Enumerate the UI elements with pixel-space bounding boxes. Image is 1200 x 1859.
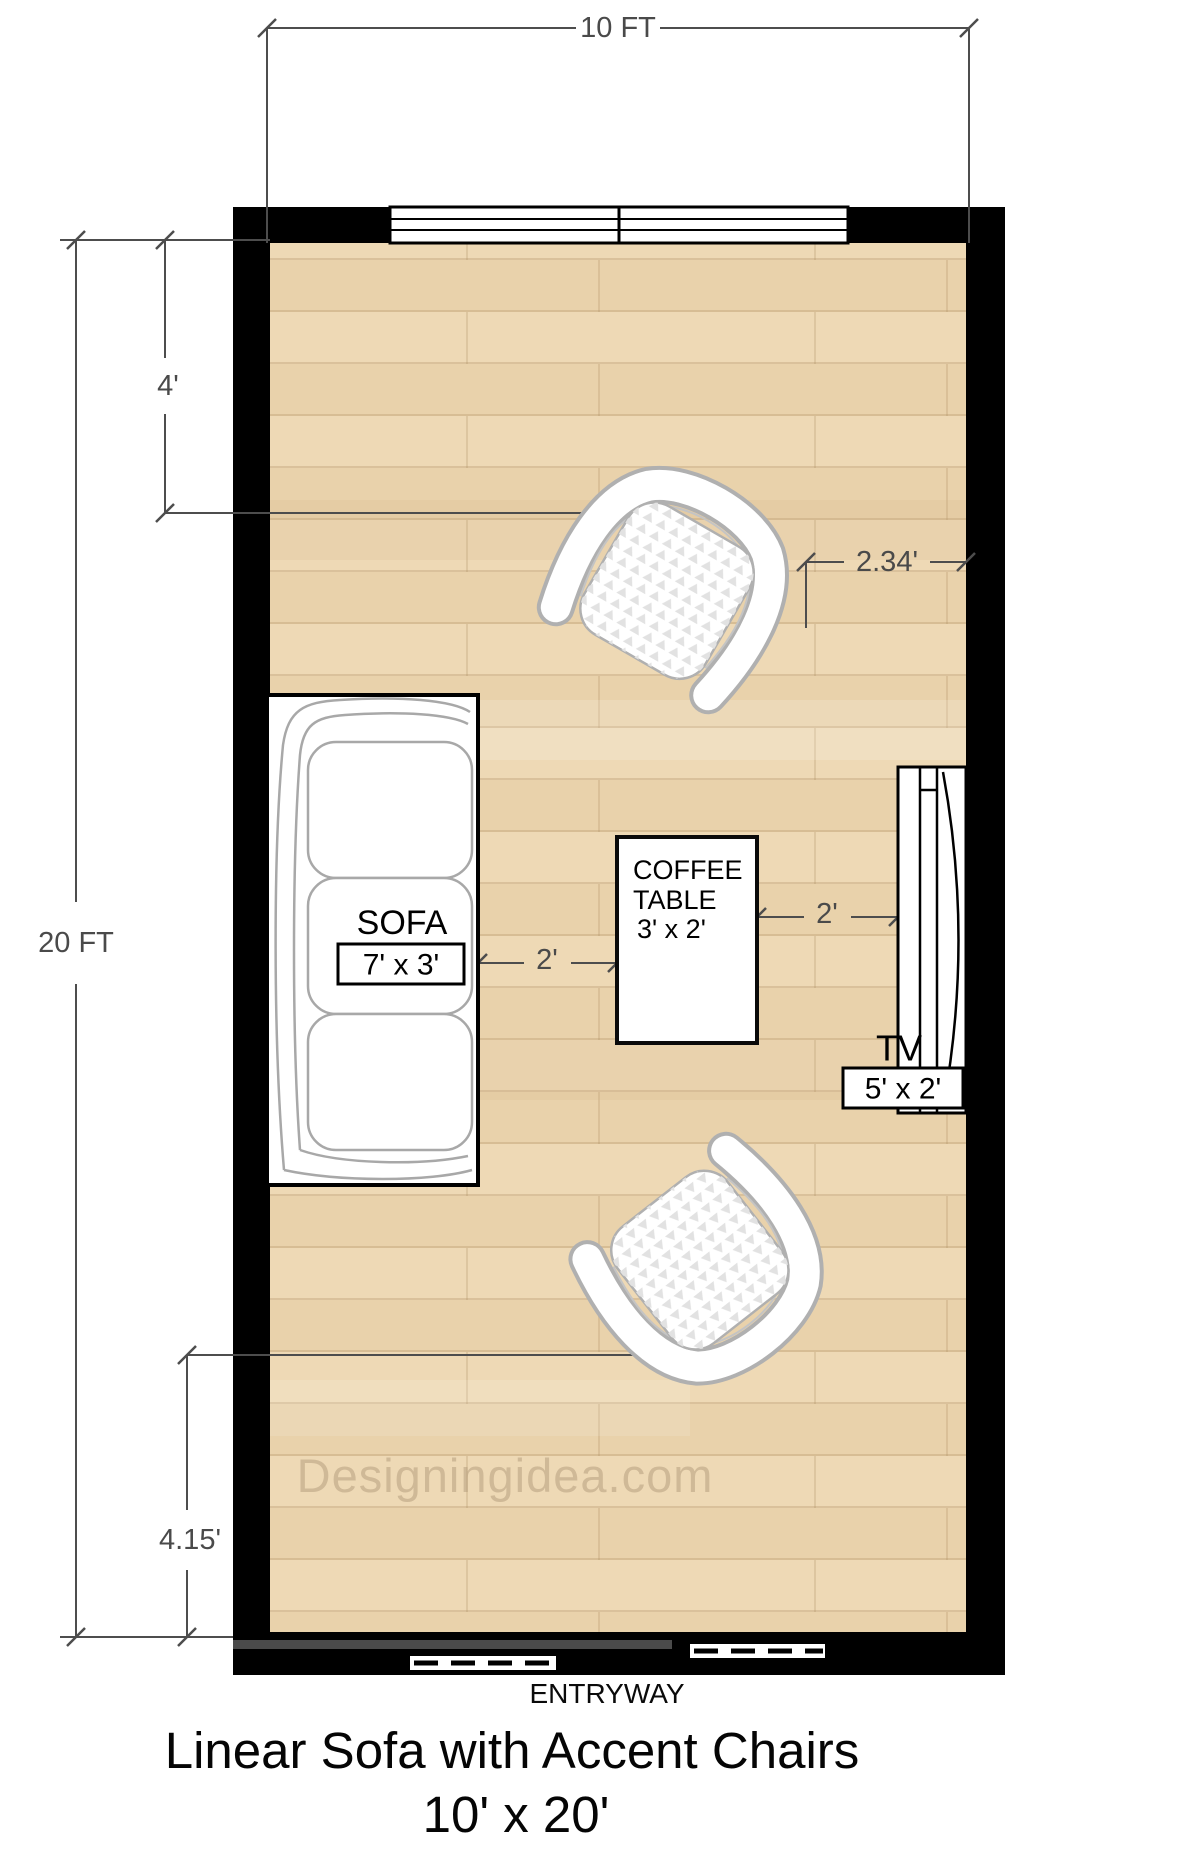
page-title-line1: Linear Sofa with Accent Chairs — [165, 1722, 860, 1779]
top-chair-offset-label: 4' — [157, 370, 179, 402]
bottom-chair-offset-label: 4.15' — [159, 1524, 221, 1556]
door-opening-left — [410, 1656, 556, 1670]
room-width-label: 10 FT — [580, 12, 656, 44]
sofa: SOFA 7' x 3' — [267, 695, 478, 1185]
entryway-label: ENTRYWAY — [529, 1678, 684, 1709]
door-opening-right — [690, 1644, 825, 1658]
coffee-table-label-1: COFFEE — [633, 855, 743, 885]
window — [390, 207, 848, 243]
coffee-table-size-label: 3' x 2' — [637, 914, 706, 944]
tv-label: TV — [876, 1028, 922, 1069]
watermark: Designingidea.com — [297, 1449, 714, 1502]
sofa-cushion — [308, 1014, 472, 1150]
sofa-label: SOFA — [357, 904, 448, 942]
coffee-table-label-2: TABLE — [633, 885, 717, 915]
table-to-tv-label: 2' — [816, 898, 838, 930]
floor-plan-canvas: 10 FT 20 FT 4' 2.34' 2' — [0, 0, 1200, 1859]
room-height-label: 20 FT — [38, 927, 114, 959]
page-title-line2: 10' x 20' — [423, 1786, 610, 1843]
sofa-size-label: 7' x 3' — [363, 949, 440, 982]
tv-size-label: 5' x 2' — [865, 1073, 942, 1106]
coffee-table: COFFEE TABLE 3' x 2' — [617, 837, 757, 1043]
door-slab — [233, 1640, 672, 1649]
chair-to-wall-label: 2.34' — [856, 546, 918, 578]
floor-plan-page: 10 FT 20 FT 4' 2.34' 2' — [0, 0, 1200, 1859]
sofa-cushion — [308, 742, 472, 878]
sofa-to-table-label: 2' — [536, 944, 558, 976]
